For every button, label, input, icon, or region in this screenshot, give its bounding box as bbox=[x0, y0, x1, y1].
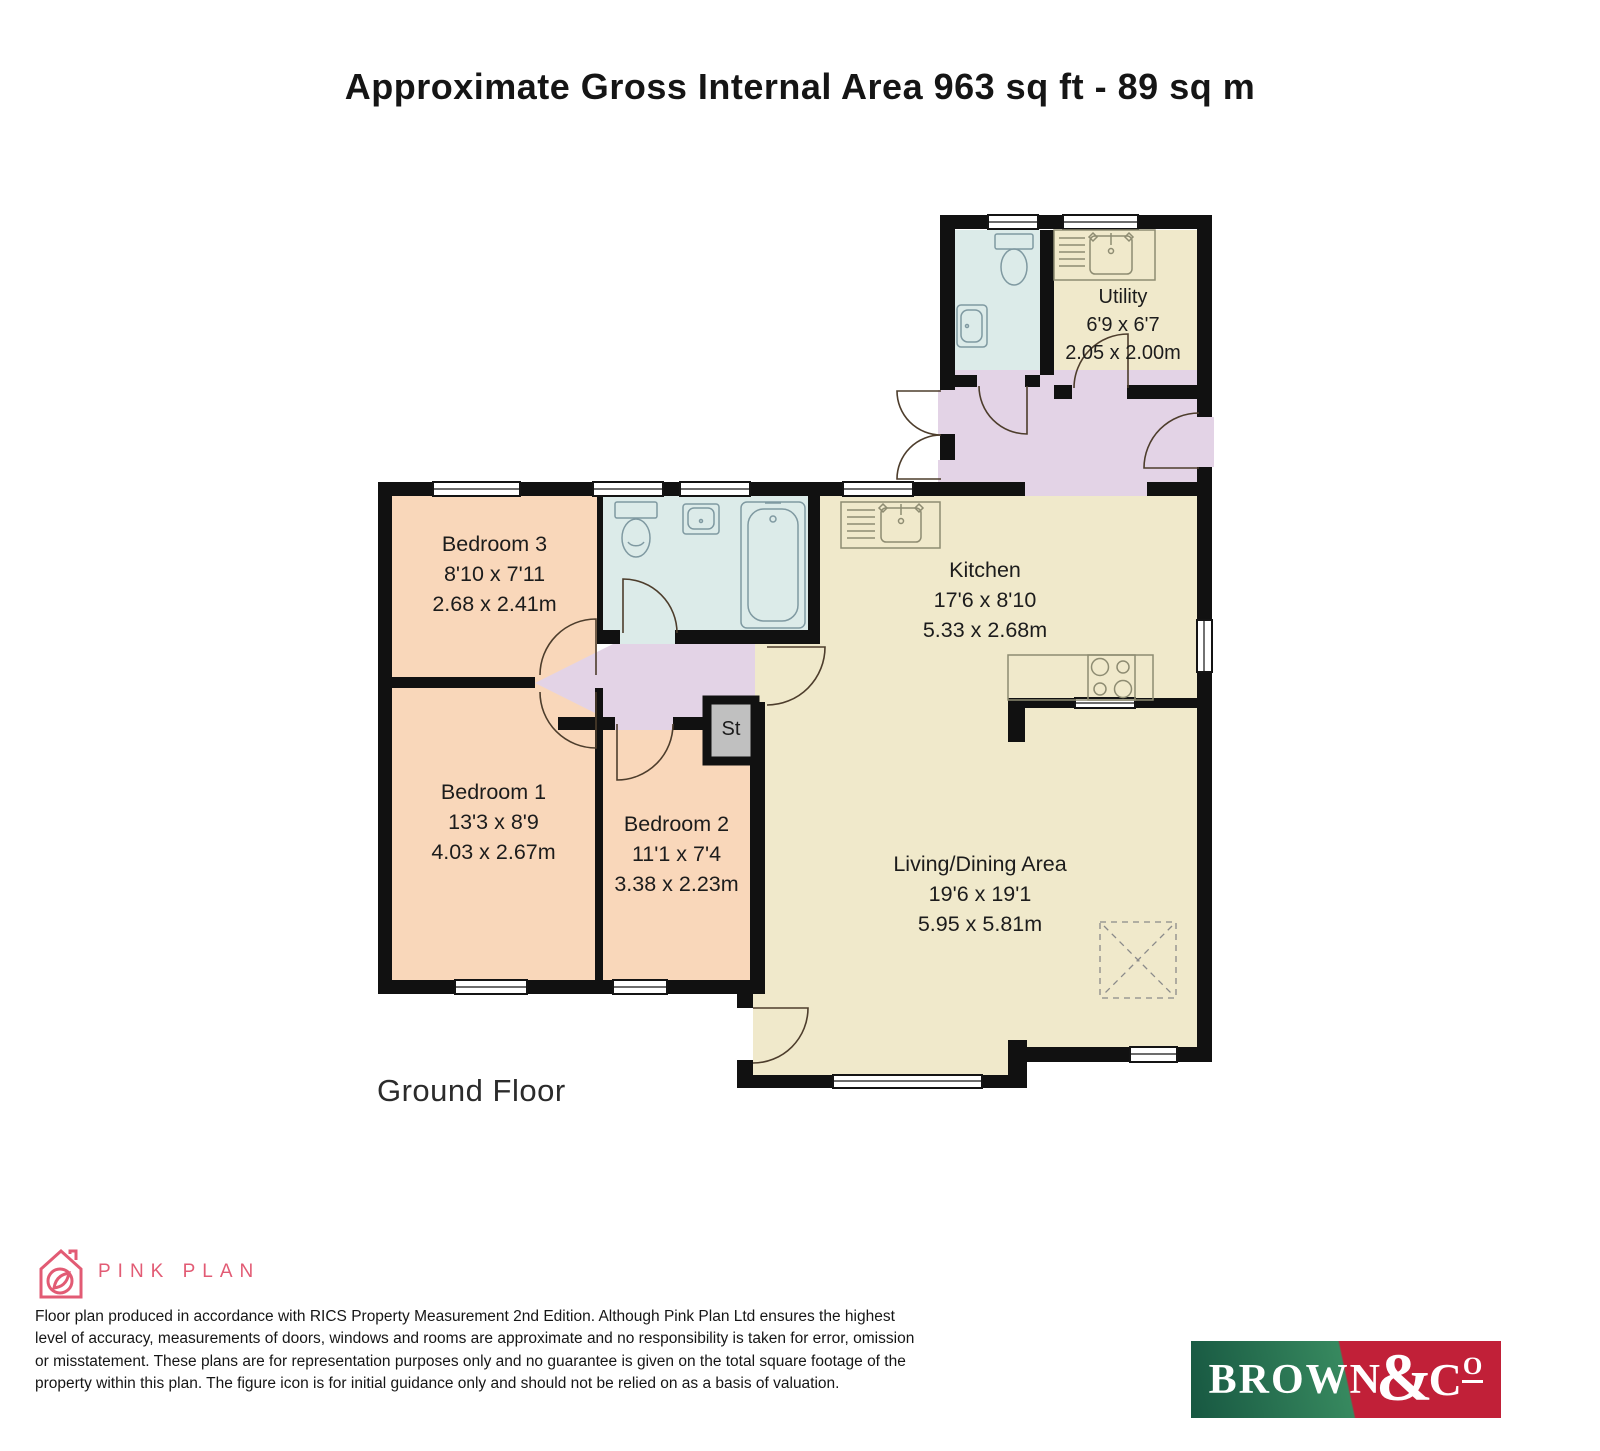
bedroom2-label: Bedroom 2 11'1 x 7'4 3.38 x 2.23m bbox=[603, 809, 750, 899]
room-name: Bedroom 1 bbox=[392, 777, 595, 807]
room-dims-ft: 6'9 x 6'7 bbox=[1047, 311, 1199, 339]
bedroom1-label: Bedroom 1 13'3 x 8'9 4.03 x 2.67m bbox=[392, 777, 595, 867]
storage-label: St bbox=[707, 714, 755, 744]
floor-name: Ground Floor bbox=[377, 1073, 566, 1109]
room-name: Kitchen bbox=[835, 555, 1135, 585]
room-dims-m: 3.38 x 2.23m bbox=[603, 869, 750, 899]
room-name: Living/Dining Area bbox=[815, 849, 1145, 879]
brand-word: BROWN bbox=[1209, 1356, 1382, 1404]
brand-ampersand: & bbox=[1376, 1343, 1433, 1411]
brand-o: O bbox=[1462, 1354, 1483, 1383]
room-dims-ft: 11'1 x 7'4 bbox=[603, 839, 750, 869]
bathroom-floor bbox=[603, 496, 808, 630]
room-dims-ft: 8'10 x 7'11 bbox=[392, 559, 597, 589]
room-dims-m: 4.03 x 2.67m bbox=[392, 837, 595, 867]
brown-and-co-logo: BROWN&CO bbox=[1191, 1341, 1501, 1418]
room-name: Bedroom 2 bbox=[603, 809, 750, 839]
room-name: Bedroom 3 bbox=[392, 529, 597, 559]
disclaimer-text: Floor plan produced in accordance with R… bbox=[35, 1306, 1025, 1396]
rear-french-door-bottom bbox=[897, 435, 941, 479]
living-dining-label: Living/Dining Area 19'6 x 19'1 5.95 x 5.… bbox=[815, 849, 1145, 939]
kitchen-label: Kitchen 17'6 x 8'10 5.33 x 2.68m bbox=[835, 555, 1135, 645]
pink-plan-wordmark: PINK PLAN bbox=[98, 1261, 260, 1283]
room-dims-ft: 19'6 x 19'1 bbox=[815, 879, 1145, 909]
room-name: Utility bbox=[1047, 283, 1199, 311]
room-dims-m: 5.95 x 5.81m bbox=[815, 909, 1145, 939]
room-dims-ft: 17'6 x 8'10 bbox=[835, 585, 1135, 615]
room-dims-m: 5.33 x 2.68m bbox=[835, 615, 1135, 645]
room-dims-m: 2.05 x 2.00m bbox=[1047, 339, 1199, 367]
room-dims-m: 2.68 x 2.41m bbox=[392, 589, 597, 619]
brand-c: C bbox=[1429, 1353, 1462, 1406]
bedroom3-label: Bedroom 3 8'10 x 7'11 2.68 x 2.41m bbox=[392, 529, 597, 619]
room-name: St bbox=[707, 714, 755, 744]
room-dims-ft: 13'3 x 8'9 bbox=[392, 807, 595, 837]
rear-french-door-top bbox=[897, 391, 941, 435]
wc-floor bbox=[955, 230, 1040, 375]
floor-plan: Bedroom 3 8'10 x 7'11 2.68 x 2.41m Utili… bbox=[375, 205, 1220, 1115]
pink-plan-house-icon bbox=[36, 1246, 86, 1307]
page-title: Approximate Gross Internal Area 963 sq f… bbox=[0, 66, 1600, 108]
utility-label: Utility 6'9 x 6'7 2.05 x 2.00m bbox=[1047, 283, 1199, 367]
